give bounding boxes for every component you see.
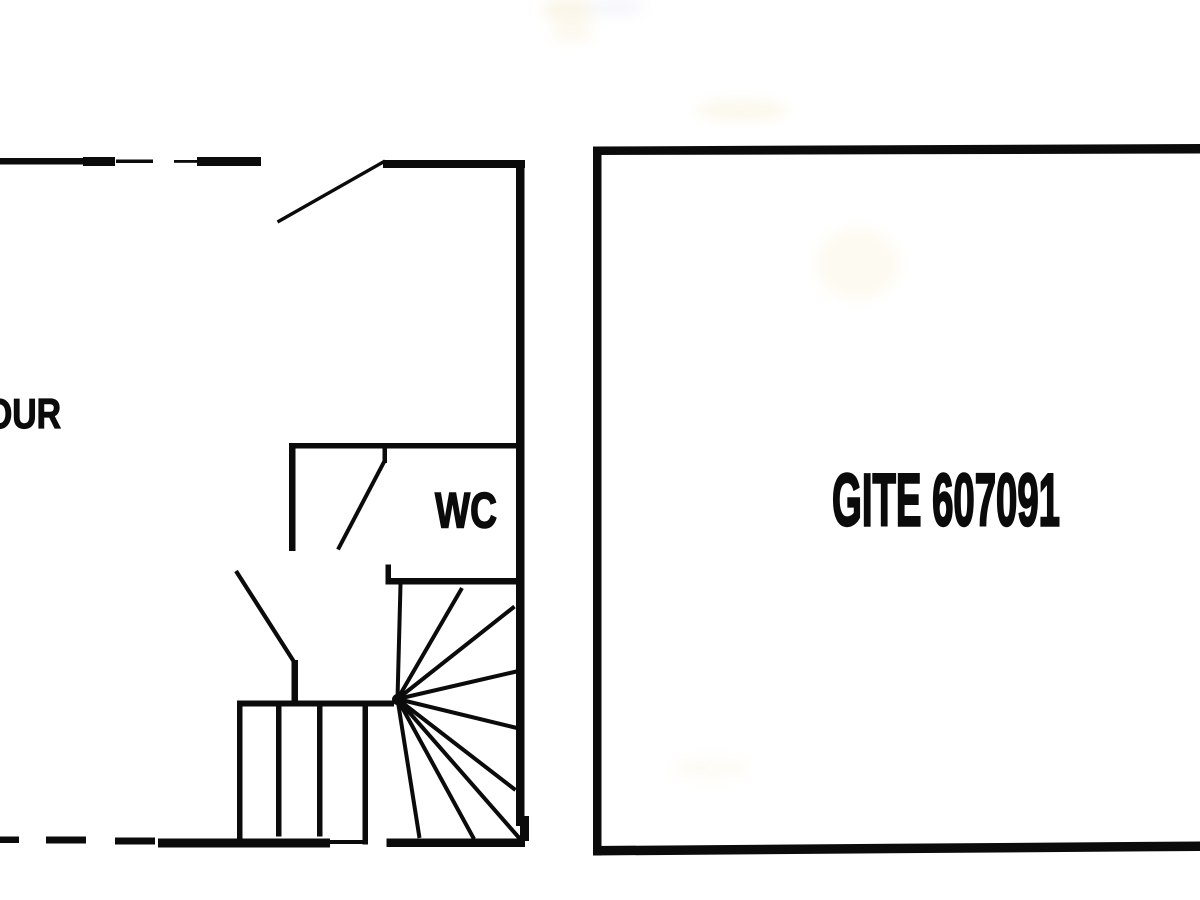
svg-text:WC: WC (435, 483, 497, 539)
svg-text:OUR: OUR (0, 390, 61, 437)
svg-text:GITE 607091: GITE 607091 (832, 459, 1060, 542)
